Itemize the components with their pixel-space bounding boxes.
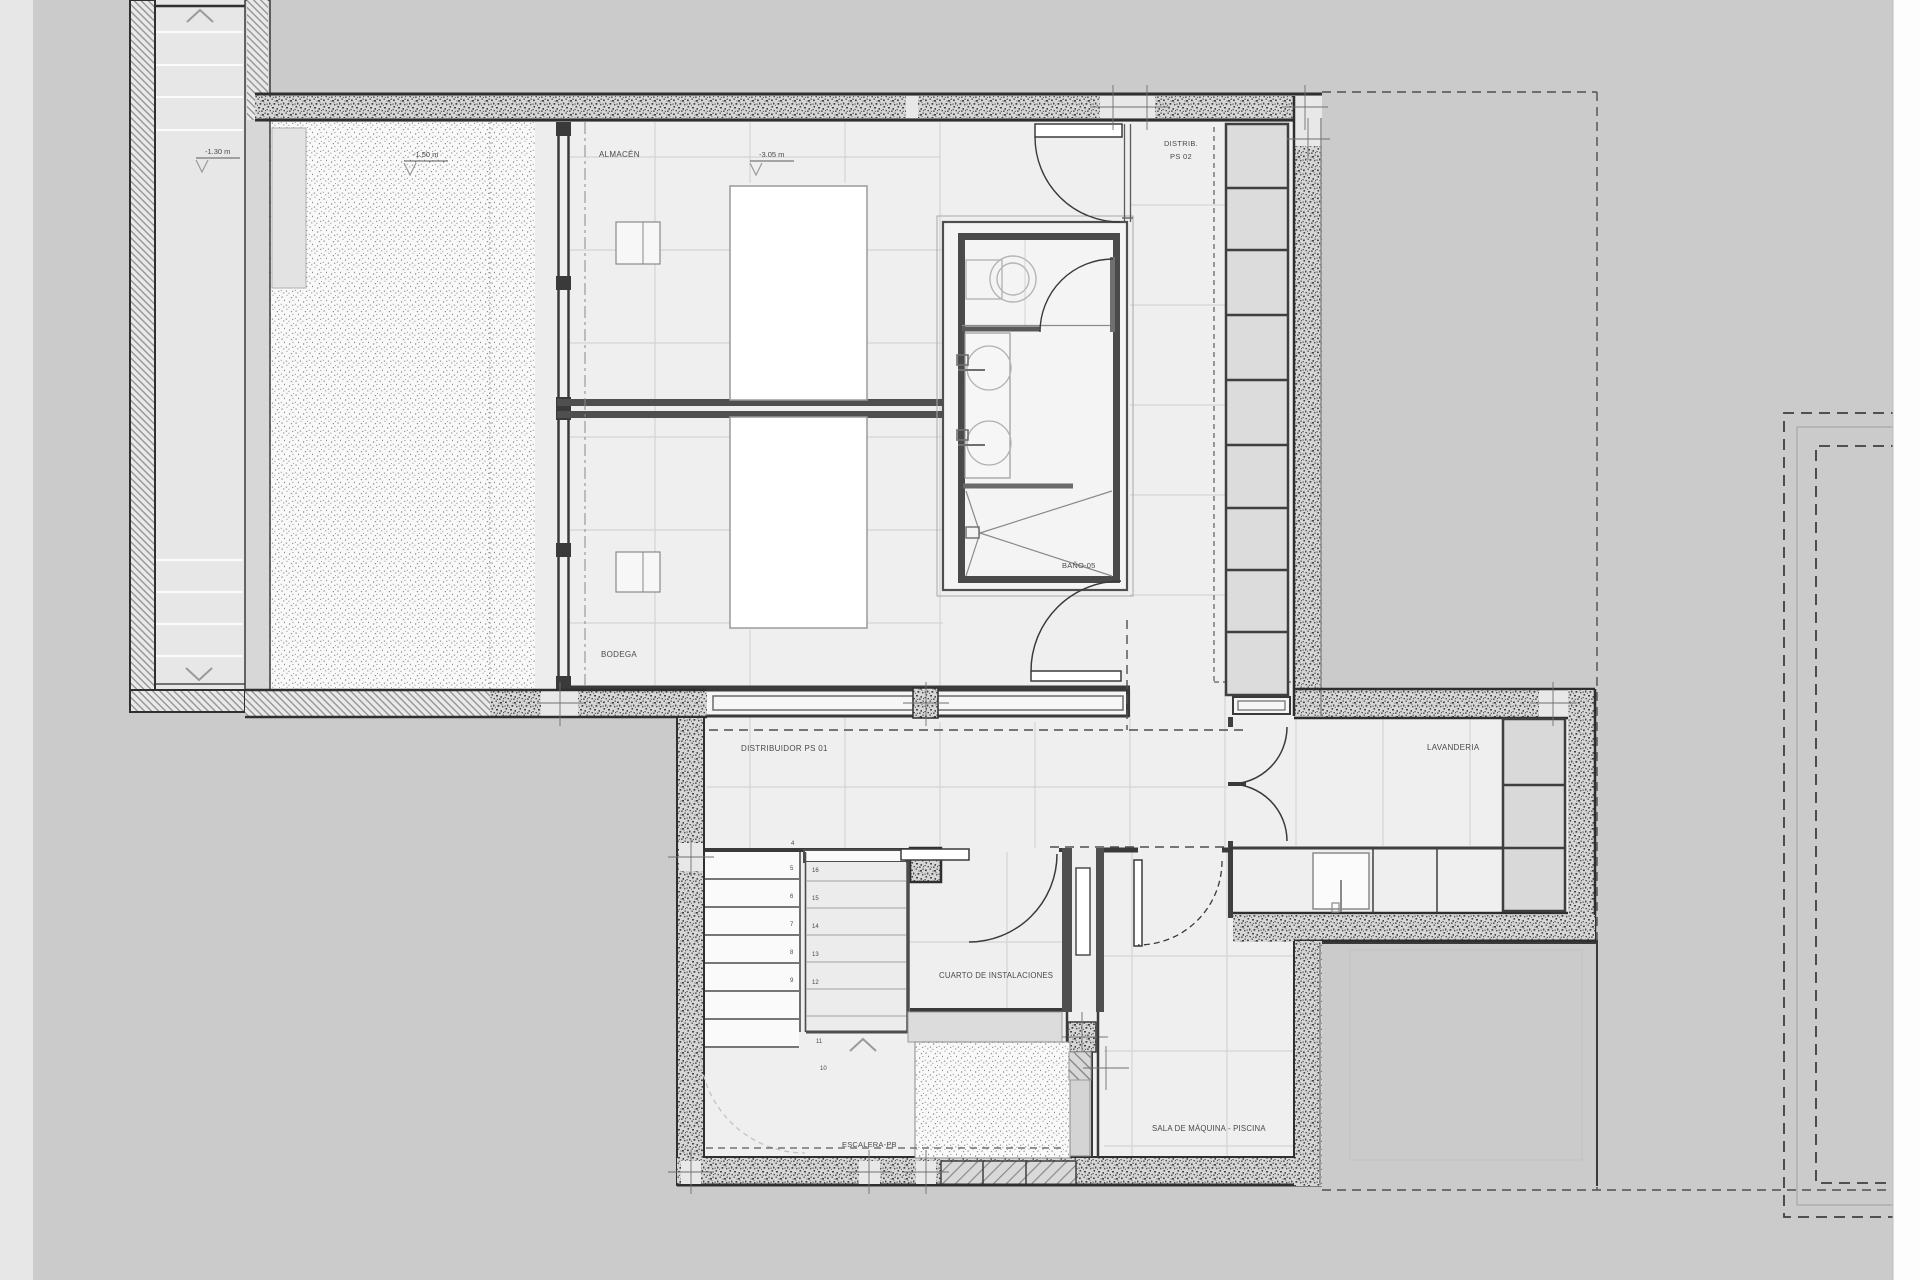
svg-text:13: 13 [812,952,819,958]
svg-text:PS 02: PS 02 [1170,152,1192,161]
svg-text:BAÑO-05: BAÑO-05 [1062,561,1096,570]
svg-text:DISTRIB.: DISTRIB. [1164,139,1198,148]
svg-text:-1.50 m: -1.50 m [413,150,438,159]
svg-text:DISTRIBUIDOR PS 01: DISTRIBUIDOR PS 01 [741,744,828,753]
svg-text:CUARTO DE INSTALACIONES: CUARTO DE INSTALACIONES [939,971,1053,980]
svg-text:BODEGA: BODEGA [601,650,637,659]
svg-text:ALMACÉN: ALMACÉN [599,150,640,159]
svg-text:10: 10 [820,1066,827,1072]
svg-text:LAVANDERIA: LAVANDERIA [1427,743,1480,752]
svg-text:-1.30 m: -1.30 m [205,147,230,156]
svg-text:16: 16 [812,868,819,874]
svg-text:14: 14 [812,924,819,930]
svg-text:12: 12 [812,980,819,986]
svg-text:-3.05 m: -3.05 m [759,150,784,159]
svg-text:11: 11 [816,1039,823,1045]
svg-text:SALA DE MÁQUINA - PISCINA: SALA DE MÁQUINA - PISCINA [1152,1124,1266,1133]
svg-text:15: 15 [812,896,819,902]
svg-text:ESCALERA-PB: ESCALERA-PB [842,1140,897,1149]
